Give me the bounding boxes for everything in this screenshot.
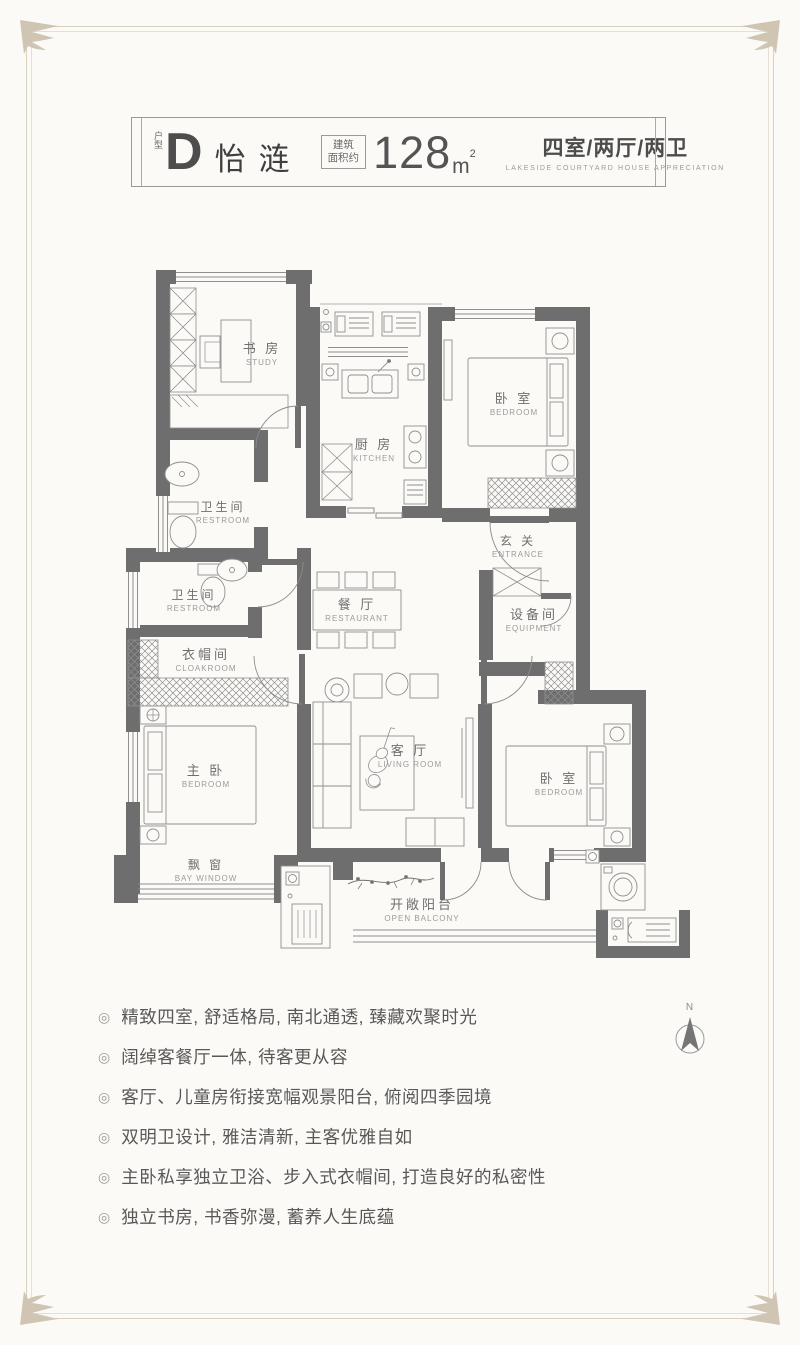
bullet-icon: ◎ — [98, 1086, 110, 1109]
bullet-icon: ◎ — [98, 1046, 110, 1069]
balcony-railing — [353, 930, 596, 942]
bullet-icon: ◎ — [98, 1206, 110, 1229]
feature-item: ◎客厅、儿童房衔接宽幅观景阳台, 俯阅四季园境 — [98, 1086, 678, 1109]
chair-icon — [317, 572, 339, 588]
bullet-icon: ◎ — [98, 1006, 110, 1029]
area-value: 128 — [373, 130, 451, 175]
area-unit: m2 — [452, 155, 476, 179]
floorplan: 书 房STUDY 厨 房KITCHEN 卧 室BEDROOM 玄 关ENTRAN… — [110, 252, 690, 964]
unit-type-block: 户型 D 怡涟 — [154, 126, 303, 179]
feature-item: ◎独立书房, 书香弥漫, 蓄养人生底蕴 — [98, 1206, 678, 1229]
panel-icon — [444, 340, 452, 400]
bay-window-glass — [138, 884, 274, 899]
side-table-icon — [325, 678, 349, 702]
plan-header: 户型 D 怡涟 建筑 面积约 128 m2 四室/两厅/两卫 LAKESIDE … — [131, 117, 666, 187]
sink-icon — [165, 462, 199, 486]
layout-rooms: 四室/两厅/两卫 — [506, 132, 725, 162]
door-icon — [509, 862, 550, 900]
closet-icon — [170, 314, 196, 340]
window-icon — [328, 345, 408, 359]
counter-corner-icon — [408, 364, 424, 380]
nightstand-icon — [604, 724, 630, 744]
unit-type-name: 怡涟 — [215, 134, 303, 179]
counter-corner-icon — [322, 364, 338, 380]
dining-table-icon — [313, 590, 401, 630]
layout-block: 四室/两厅/两卫 LAKESIDE COURTYARD HOUSE APPREC… — [506, 132, 725, 172]
window-icon — [455, 307, 535, 321]
closet-icon — [170, 366, 196, 392]
armchair-icon — [410, 674, 438, 698]
armchair-icon — [354, 674, 382, 698]
stove-icon — [404, 426, 426, 468]
closet-icon — [170, 340, 196, 366]
feature-text: 客厅、儿童房衔接宽幅观景阳台, 俯阅四季园境 — [121, 1086, 492, 1109]
feature-item: ◎精致四室, 舒适格局, 南北通透, 臻藏欢聚时光 — [98, 1006, 678, 1029]
wardrobe-icon — [488, 478, 576, 508]
sofa-icon — [313, 702, 351, 828]
shower-icon — [170, 395, 288, 428]
feature-text: 双明卫设计, 雅洁清新, 主客优雅自如 — [121, 1126, 412, 1149]
unit-type-label: 户型 — [154, 132, 164, 150]
feature-item: ◎双明卫设计, 雅洁清新, 主客优雅自如 — [98, 1126, 678, 1149]
feature-text: 阔绰客餐厅一体, 待客更从容 — [121, 1046, 348, 1069]
area-unit-sup: 2 — [470, 148, 476, 160]
floorplan-drawing — [110, 252, 690, 964]
toilet-icon — [168, 502, 198, 548]
vent-icon — [324, 310, 329, 315]
unit-type-letter: D — [165, 126, 203, 178]
water-heater-icon — [281, 866, 330, 948]
ac-unit-icon — [382, 312, 420, 336]
wardrobe-icon — [545, 662, 573, 704]
drain-icon — [586, 850, 599, 863]
cabinet-icon — [322, 444, 352, 472]
corner-ornament-icon — [14, 1275, 70, 1331]
washing-machine-icon — [601, 864, 645, 910]
nightstand-icon — [140, 706, 166, 724]
tv-icon — [462, 718, 473, 808]
feature-list: ◎精致四室, 舒适格局, 南北通透, 臻藏欢聚时光 ◎阔绰客餐厅一体, 待客更从… — [98, 1006, 678, 1246]
area-label-line1: 建筑 — [328, 139, 360, 152]
side-table-icon — [406, 818, 464, 846]
header-inner-line — [655, 118, 656, 186]
appliance-icon — [404, 480, 426, 504]
bed-icon — [144, 726, 256, 824]
desk-icon — [200, 320, 251, 382]
rug-icon — [386, 673, 408, 695]
chair-icon — [345, 572, 367, 588]
bed-icon — [506, 746, 606, 826]
coffee-table-icon — [360, 736, 414, 810]
ac-unit-icon — [335, 312, 373, 336]
corner-ornament-icon — [14, 14, 70, 70]
chair-icon — [373, 572, 395, 588]
window-icon — [126, 732, 140, 802]
corner-ornament-icon — [730, 1275, 786, 1331]
plant-decor-icon — [348, 875, 434, 889]
header-inner-line — [141, 118, 142, 186]
nightstand-icon — [546, 328, 574, 354]
feature-text: 独立书房, 书香弥漫, 蓄养人生底蕴 — [121, 1206, 394, 1229]
chair-icon — [373, 632, 395, 648]
area-unit-m: m — [452, 155, 470, 178]
feature-text: 精致四室, 舒适格局, 南北通透, 臻藏欢聚时光 — [121, 1006, 477, 1029]
wardrobe-icon — [128, 640, 158, 678]
sink-icon — [217, 559, 247, 581]
feature-text: 主卧私享独立卫浴、步入式衣帽间, 打造良好的私密性 — [121, 1166, 546, 1189]
sliding-door-icon — [348, 508, 402, 518]
bed-icon — [468, 358, 568, 446]
door-icon — [541, 593, 571, 626]
ac-unit-icon — [608, 914, 679, 944]
wardrobe-icon — [128, 678, 288, 706]
bullet-icon: ◎ — [98, 1126, 110, 1149]
drain-icon — [321, 322, 331, 332]
cabinet-icon — [322, 472, 352, 500]
feature-item: ◎阔绰客餐厅一体, 待客更从容 — [98, 1046, 678, 1069]
window-icon — [176, 270, 286, 284]
corner-ornament-icon — [730, 14, 786, 70]
door-icon — [258, 559, 303, 607]
area-label-line2: 面积约 — [328, 152, 360, 165]
sink-icon — [342, 360, 398, 399]
nightstand-icon — [604, 828, 630, 846]
bullet-icon: ◎ — [98, 1166, 110, 1189]
closet-icon — [170, 288, 196, 314]
feature-item: ◎主卧私享独立卫浴、步入式衣帽间, 打造良好的私密性 — [98, 1166, 678, 1189]
chair-icon — [345, 632, 367, 648]
walls — [114, 270, 690, 958]
layout-subtitle: LAKESIDE COURTYARD HOUSE APPRECIATION — [506, 165, 725, 172]
nightstand-icon — [140, 826, 166, 844]
door-icon — [440, 862, 481, 900]
area-label-box: 建筑 面积约 — [321, 135, 367, 169]
chair-icon — [317, 632, 339, 648]
nightstand-icon — [546, 450, 574, 476]
window-icon — [126, 572, 140, 628]
